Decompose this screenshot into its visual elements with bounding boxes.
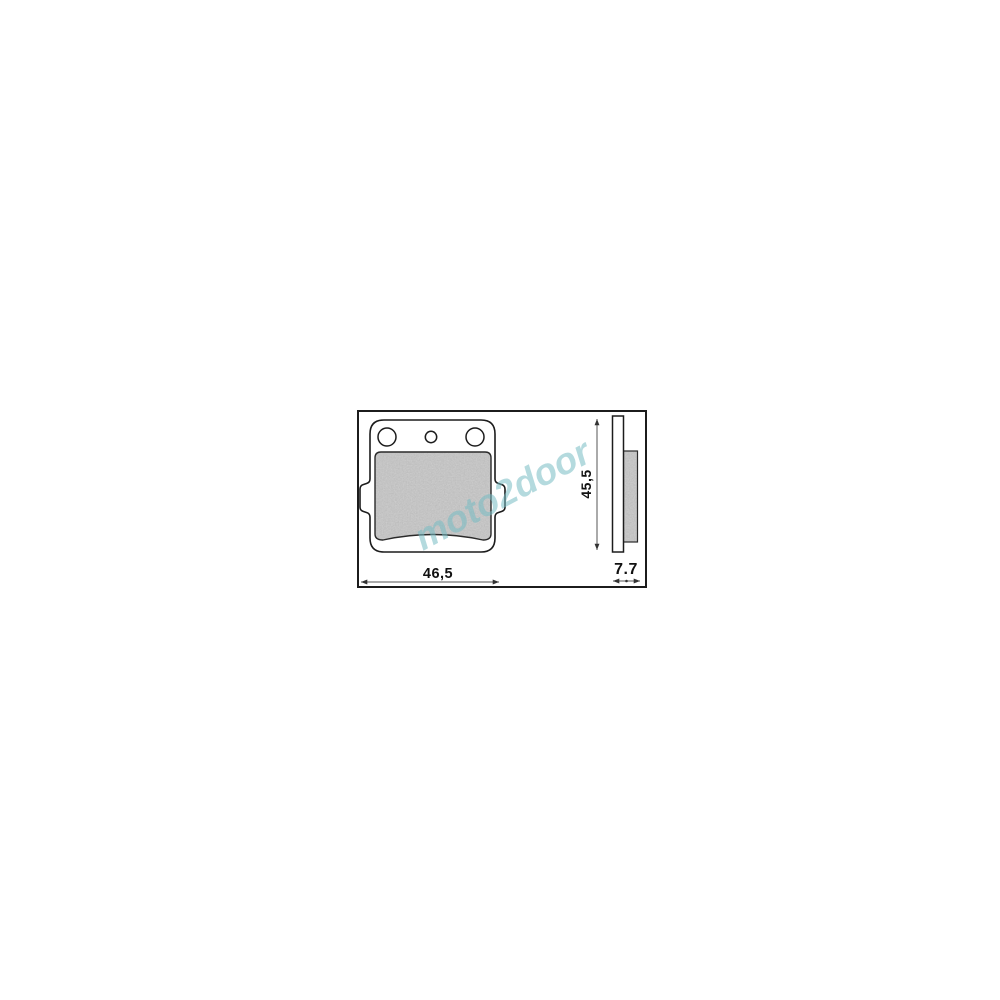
width-dimension-label: 46,5 (423, 566, 453, 582)
front-view (360, 420, 505, 552)
friction-pad-front (373, 450, 495, 544)
mounting-hole-left (378, 428, 396, 446)
brake-pad-diagram: 46,5 45,5 7.7 (359, 412, 645, 586)
thickness-dimension-label: 7.7 (614, 561, 638, 578)
thickness-dimension-tick (625, 580, 628, 583)
side-view (613, 416, 638, 552)
height-dimension-label: 45,5 (578, 469, 594, 498)
mounting-hole-right (466, 428, 484, 446)
brake-pad-diagram-frame: 46,5 45,5 7.7 (357, 410, 647, 588)
backing-plate-side (613, 416, 624, 552)
friction-pad-side (623, 451, 638, 542)
page-background: 46,5 45,5 7.7 moto2door (0, 0, 1000, 1000)
mounting-hole-center (425, 431, 436, 442)
